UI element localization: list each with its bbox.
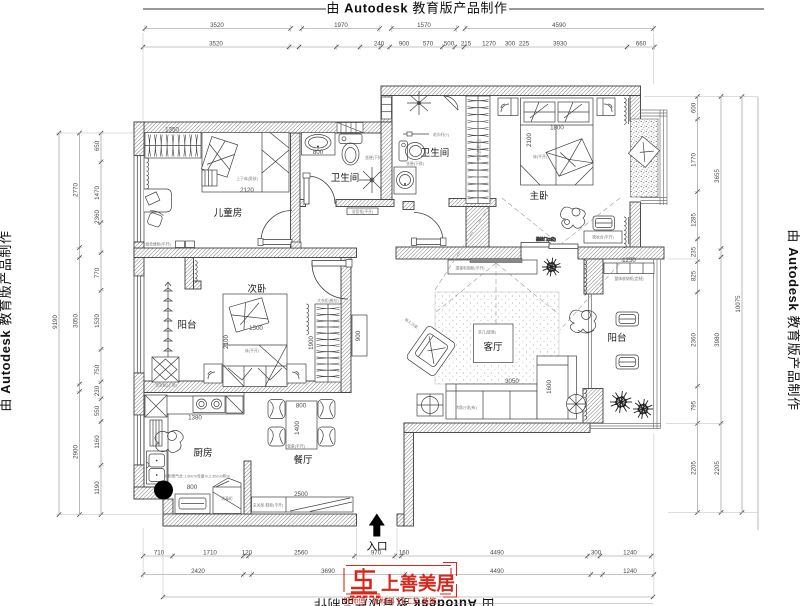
svg-text:600: 600	[691, 102, 698, 113]
svg-text:衣柜(推拉门): 衣柜(推拉门)	[476, 139, 481, 161]
svg-text:120: 120	[242, 550, 253, 557]
svg-text:550: 550	[94, 405, 101, 416]
svg-text:3980: 3980	[714, 333, 721, 347]
svg-text:800: 800	[313, 149, 324, 156]
svg-text:次卧: 次卧	[247, 283, 267, 295]
svg-text:地柜燃气灶:1.5M;%含量%,2.35m/0柜%: 地柜燃气灶:1.5M;%含量%,2.35m/0柜%	[164, 474, 230, 479]
svg-text:1710: 1710	[203, 550, 217, 557]
svg-text:主卧: 主卧	[529, 190, 549, 202]
svg-text:玄关柜-鞋柜(平开): 玄关柜-鞋柜(平开)	[253, 503, 284, 508]
svg-text:825: 825	[691, 270, 698, 281]
svg-text:茶几(玻璃): 茶几(玻璃)	[478, 330, 496, 335]
svg-text:1970: 1970	[334, 22, 348, 29]
svg-text:300: 300	[591, 550, 602, 557]
svg-text:卫生间: 卫生间	[421, 147, 450, 159]
svg-text:300: 300	[505, 41, 516, 48]
svg-text:1400: 1400	[294, 421, 301, 435]
svg-text:160: 160	[399, 550, 410, 557]
svg-text:1800: 1800	[550, 125, 564, 132]
svg-text:2100: 2100	[223, 335, 230, 349]
svg-text:2770: 2770	[73, 183, 80, 197]
svg-text:4490: 4490	[490, 568, 504, 575]
svg-text:餐厅: 餐厅	[293, 454, 313, 466]
svg-text:洗衣机(上排): 洗衣机(上排)	[155, 383, 177, 388]
svg-text:795: 795	[691, 400, 698, 411]
svg-text:组合矮柜(平开): 组合矮柜(平开)	[145, 242, 171, 247]
svg-text:2205: 2205	[691, 461, 698, 475]
svg-text:1380: 1380	[188, 415, 202, 422]
svg-text:3050: 3050	[505, 378, 519, 385]
svg-text:240: 240	[374, 41, 385, 48]
svg-text:由 Autodesk 教育版产品制作: 由 Autodesk 教育版产品制作	[786, 229, 800, 410]
svg-text:1530: 1530	[94, 314, 101, 328]
svg-text:750: 750	[94, 364, 101, 375]
svg-text:毛巾杆(?): 毛巾杆(?)	[433, 132, 450, 137]
svg-text:餐桌(平开): 餐桌(平开)	[287, 444, 305, 449]
svg-text:2500: 2500	[294, 491, 308, 498]
svg-text:整体收纳柜(定制): 整体收纳柜(定制)	[614, 276, 644, 281]
svg-text:2360: 2360	[691, 333, 698, 347]
svg-text:1350: 1350	[165, 127, 179, 134]
svg-text:1190: 1190	[94, 481, 101, 495]
svg-text:推拉门(2扇): 推拉门(2扇)	[536, 237, 557, 242]
svg-text:梳妆台(平开): 梳妆台(平开)	[592, 235, 614, 240]
svg-text:3050: 3050	[73, 314, 80, 328]
svg-text:由 Autodesk 教育版产品制作: 由 Autodesk 教育版产品制作	[0, 230, 13, 411]
svg-text:215: 215	[461, 41, 472, 48]
svg-text:厨房: 厨房	[193, 447, 212, 459]
svg-text:2360: 2360	[94, 210, 101, 224]
svg-text:1240: 1240	[623, 550, 637, 557]
svg-text:2120: 2120	[240, 187, 254, 194]
svg-text:1285: 1285	[691, 213, 698, 227]
svg-text:1500: 1500	[249, 325, 263, 332]
svg-text:坐便(下排): 坐便(下排)	[365, 155, 383, 160]
svg-text:入口: 入口	[367, 541, 388, 553]
svg-text:570: 570	[423, 41, 434, 48]
svg-text:3520: 3520	[210, 22, 224, 29]
svg-text:770: 770	[94, 267, 101, 278]
svg-text:2420: 2420	[191, 568, 205, 575]
svg-text:大衣柜(推拉): 大衣柜(推拉)	[317, 298, 339, 303]
svg-text:1240: 1240	[623, 568, 637, 575]
svg-text:2205: 2205	[714, 461, 721, 475]
svg-text:650: 650	[94, 140, 101, 151]
svg-text:1900: 1900	[308, 336, 315, 350]
svg-text:透视电视柜(平开): 透视电视柜(平开)	[455, 266, 485, 271]
svg-text:3520: 3520	[209, 41, 223, 48]
svg-text:660: 660	[636, 41, 647, 48]
svg-text:由 Autodesk 教育版产品制作: 由 Autodesk 教育版产品制作	[326, 1, 507, 16]
svg-text:230: 230	[94, 385, 101, 396]
svg-text:坐便(下排): 坐便(下排)	[406, 161, 424, 166]
svg-text:3930: 3930	[553, 41, 567, 48]
svg-text:9190: 9190	[52, 315, 59, 329]
svg-text:2900: 2900	[73, 445, 80, 459]
svg-text:3690: 3690	[321, 568, 335, 575]
svg-text:阳台: 阳台	[177, 319, 196, 331]
svg-text:1570: 1570	[417, 22, 431, 29]
svg-text:900: 900	[399, 41, 410, 48]
svg-text:阳台: 阳台	[607, 332, 626, 344]
svg-text:1600: 1600	[546, 380, 553, 394]
svg-text:消毒柜: 消毒柜	[221, 496, 233, 501]
svg-text:500: 500	[444, 41, 455, 48]
svg-text:1770: 1770	[691, 153, 698, 167]
svg-text:225: 225	[519, 41, 530, 48]
svg-text:转角沙发(布): 转角沙发(布)	[455, 405, 477, 410]
svg-text:客厅: 客厅	[483, 341, 503, 353]
svg-text:2100: 2100	[526, 133, 533, 147]
svg-text:2560: 2560	[294, 550, 308, 557]
svg-text:1160: 1160	[94, 435, 101, 449]
svg-text:235: 235	[691, 246, 698, 257]
svg-text:浴室柜(平开): 浴室柜(平开)	[352, 209, 374, 214]
svg-text:1470: 1470	[94, 186, 101, 200]
svg-text:卫生间: 卫生间	[331, 172, 360, 184]
svg-text:床(平开): 床(平开)	[533, 154, 548, 159]
svg-text:900: 900	[355, 330, 362, 341]
svg-text:800: 800	[187, 484, 198, 491]
svg-text:10075: 10075	[735, 295, 742, 313]
svg-text:4590: 4590	[552, 22, 566, 29]
svg-text:1270: 1270	[482, 41, 496, 48]
svg-text:床(平开): 床(平开)	[245, 348, 260, 353]
svg-text:3655: 3655	[714, 169, 721, 183]
svg-text:儿童房: 儿童房	[214, 207, 243, 219]
svg-text:800: 800	[296, 403, 307, 410]
svg-text:上善美居: 上善美居	[381, 573, 455, 594]
svg-text:上下床(男孩): 上下床(男孩)	[236, 176, 258, 181]
svg-text:4490: 4490	[490, 550, 504, 557]
